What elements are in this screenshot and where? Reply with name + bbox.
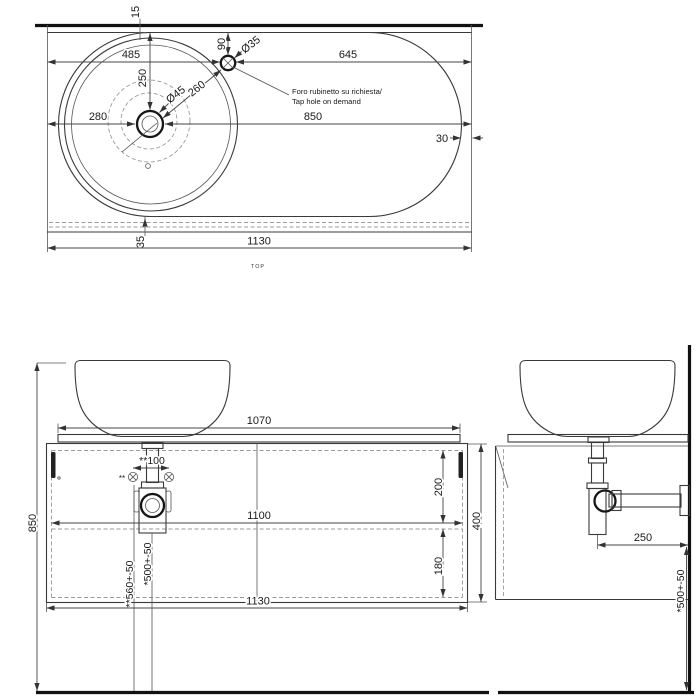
dim-frame-height: 400 (471, 512, 483, 530)
technical-drawing-canvas: 15 485 645 90 Ø35 250 260 Ø45 280 (0, 0, 700, 700)
round-basin-top-view (65, 38, 238, 211)
top-view: 15 485 645 90 Ø35 250 260 Ø45 280 (35, 6, 483, 270)
dim-tap-diameter: Ø35 (239, 34, 263, 56)
frame-corner-brace (496, 447, 508, 488)
washbasin-drawing: 15 485 645 90 Ø35 250 260 Ø45 280 (0, 0, 700, 700)
overflow-hole (146, 164, 151, 169)
dim-screw-spacing: **100 (139, 455, 165, 467)
drain-trap-side (587, 437, 690, 535)
dim-outlet-height: *500+-50 (675, 569, 687, 612)
left-towel-handle (51, 452, 56, 478)
dim-drain-to-right: 850 (304, 111, 322, 123)
handle-screw-dot (58, 477, 60, 479)
dim-screw-height: **560+-50 (124, 560, 136, 607)
counter-structure-outline (47, 25, 472, 252)
tap-hole (221, 56, 235, 70)
trap-left-tab (134, 491, 139, 512)
vessel-basin-side (520, 361, 675, 437)
vessel-basin-front (75, 361, 230, 437)
view-label-top: TOP (251, 264, 265, 270)
dim-drain-height: *500+-50 (142, 542, 154, 585)
dim-rim-height: 850 (27, 514, 39, 532)
front-view: ** 850 1070 **100 (27, 361, 489, 693)
dim-total-width-top: 1130 (247, 236, 271, 248)
screw-asterisks: ** (119, 474, 125, 483)
note-tap-hole-it: Foro rubinetto su richiesta/ (292, 87, 383, 96)
dim-drain-diameter: Ø45 (164, 84, 188, 106)
dim-back-to-drain: 250 (137, 69, 149, 87)
dim-lower-inner-height: 180 (433, 557, 445, 575)
outlet-pipe (609, 494, 681, 507)
trap-right-tab (166, 491, 171, 512)
side-view-dimensions: 250 *500+-50 (598, 532, 689, 690)
dim-left-to-tap: 485 (122, 49, 140, 61)
drain-hole (137, 111, 163, 137)
dim-left-to-drain: 280 (89, 111, 107, 123)
note-tap-hole-en: Tap hole on demand (292, 97, 361, 106)
side-view: 250 *500+-50 (496, 345, 695, 693)
dim-upper-inner-height: 200 (433, 478, 445, 496)
dim-inner-width: 1100 (247, 510, 271, 522)
dim-counter-width: 1070 (247, 415, 271, 427)
dim-wall-gap: 15 (130, 6, 142, 18)
dim-tap-to-right: 645 (339, 49, 357, 61)
dim-drain-to-wall: 250 (634, 532, 652, 544)
oval-countertop-outline (59, 33, 462, 217)
countertop-slab-front (58, 435, 460, 443)
dim-total-width-front: 1130 (246, 596, 270, 608)
trap-cap (141, 494, 164, 517)
right-towel-handle (459, 452, 464, 478)
dim-front-inset: 35 (135, 236, 147, 248)
dim-side-inset: 30 (436, 133, 448, 145)
countertop-slab-side (508, 435, 688, 443)
dim-tap-setback: 90 (216, 38, 228, 50)
